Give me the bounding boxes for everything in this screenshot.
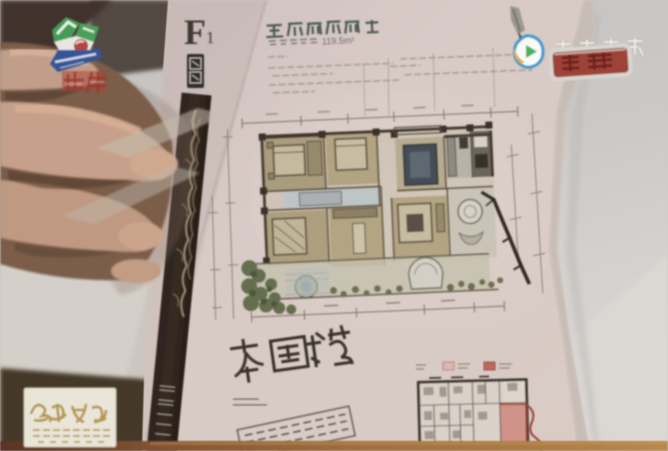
- svg-text:119.5m²: 119.5m²: [322, 35, 355, 46]
- svg-text:F: F: [184, 12, 206, 52]
- svg-text:1: 1: [206, 28, 215, 47]
